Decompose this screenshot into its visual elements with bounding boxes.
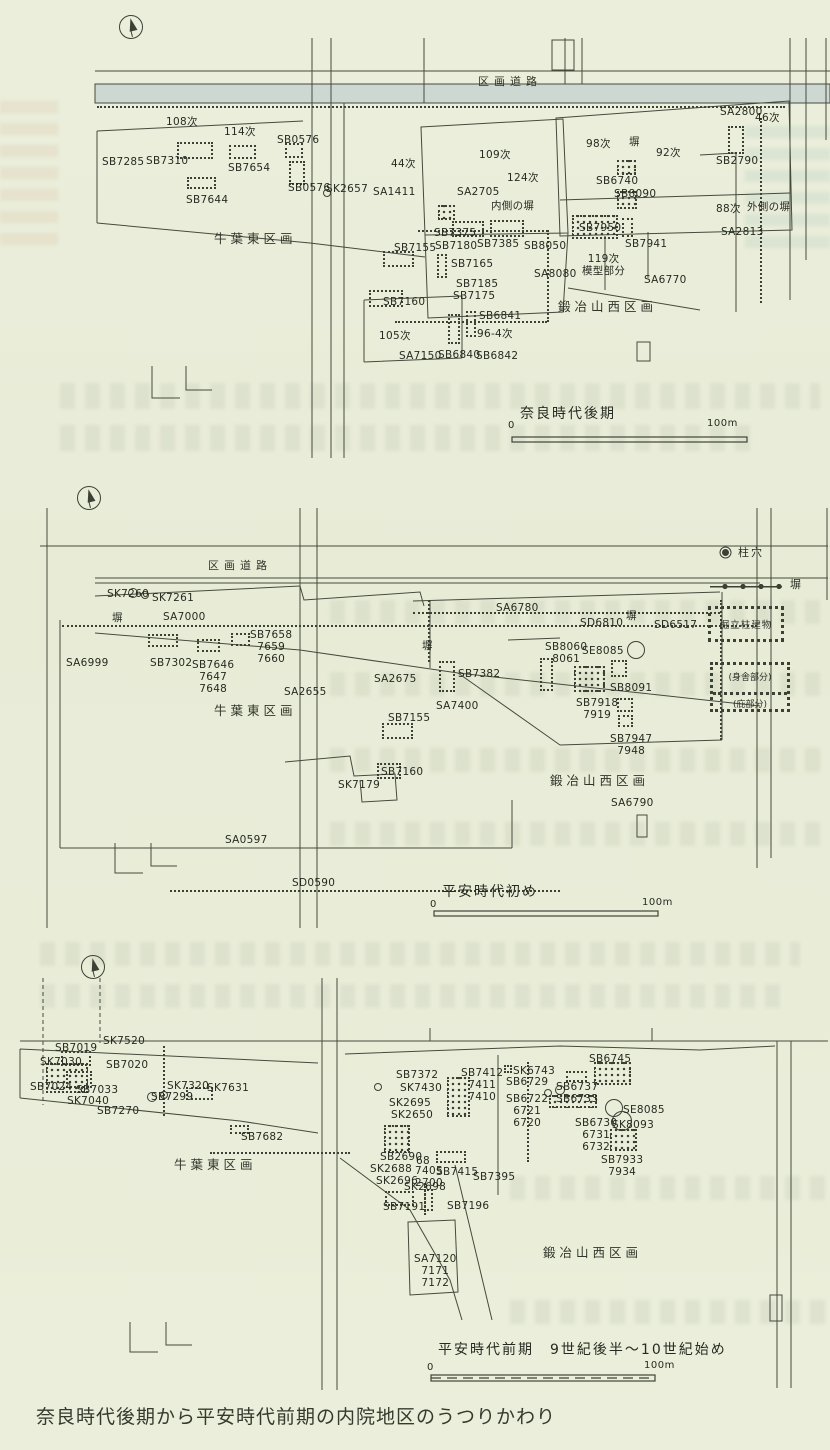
map-label: SK7520 xyxy=(103,1035,145,1047)
map-label: SB7299 xyxy=(151,1091,193,1103)
map-label: SK7631 xyxy=(207,1082,249,1094)
fence-line-icon xyxy=(710,582,782,591)
legend-hisashi-label: (庇部分) xyxy=(713,697,787,710)
fence-line xyxy=(163,1046,165,1116)
figure-caption: 奈良時代後期から平安時代前期の内院地区のうつりかわり xyxy=(36,1402,556,1429)
period-title: 平安時代前期 9世紀後半～10世紀始め xyxy=(438,1342,727,1358)
map-label: SB7395 xyxy=(473,1171,515,1183)
map-label: SB6733 xyxy=(556,1093,598,1105)
legend-posthole-label: 柱穴 xyxy=(738,544,764,560)
map-label: SK7030 xyxy=(40,1056,82,1068)
map-label: SB7933 7934 xyxy=(601,1154,643,1178)
pit-circle xyxy=(374,1083,382,1091)
map-label: 牛葉東区画 xyxy=(174,1158,257,1172)
map-label: 100m xyxy=(644,1360,675,1372)
map-label: SB6745 xyxy=(589,1053,631,1065)
building-outline xyxy=(384,1125,410,1153)
map-label: SE8085 xyxy=(623,1104,665,1116)
scanned-map-page: 区画道路108次114次SB0576SB7285SB7310SB7654SB05… xyxy=(0,0,830,1450)
map-label: SB7372 xyxy=(396,1069,438,1081)
map-label: 0 xyxy=(427,1362,434,1374)
posthole-icon xyxy=(722,549,729,556)
map-label: SB7191 xyxy=(383,1201,425,1213)
building-outline xyxy=(436,1151,466,1163)
map-label: SK2695 xyxy=(389,1097,431,1109)
map-label: SB7024 xyxy=(30,1081,72,1093)
map-label: SK2688 xyxy=(370,1163,412,1175)
pillar-building-icon: 掘立柱建物 xyxy=(708,606,784,642)
map-label: SK8093 xyxy=(612,1119,654,1131)
map-label: 鍛冶山西区画 xyxy=(543,1246,642,1260)
map-label: SB6729 xyxy=(506,1076,548,1088)
fence-line xyxy=(210,1152,350,1154)
map-label: SA7120 7171 7172 xyxy=(414,1253,457,1289)
map-label: SB7682 xyxy=(241,1131,283,1143)
legend-building-label: 掘立柱建物 xyxy=(720,617,773,631)
map-label: SK2650 xyxy=(391,1109,433,1121)
map-label: SK2698 xyxy=(404,1181,446,1193)
map-label: SB7196 xyxy=(447,1200,489,1212)
building-outline xyxy=(504,1065,512,1073)
heian-early-period-layer: SK7520SB7019SK7030SB7020SB7024SB7033SK70… xyxy=(0,0,830,1450)
pillar-building-with-eaves-icon: (身舎部分) (庇部分) xyxy=(710,662,790,712)
map-label: SB7412 7411 7410 xyxy=(461,1067,503,1103)
legend-moya-label: (身舎部分) xyxy=(713,670,787,683)
map-label: SK7430 xyxy=(400,1082,442,1094)
map-label: SB7019 xyxy=(55,1042,97,1054)
map-label: SB7020 xyxy=(106,1059,148,1071)
legend-divider xyxy=(713,692,787,695)
legend-fence-label: 塀 xyxy=(790,576,801,592)
building-outline xyxy=(594,1062,631,1085)
map-label: SB7270 xyxy=(97,1105,139,1117)
map-label: SB6737 xyxy=(556,1081,598,1093)
map-label: SB6722 6721 6720 xyxy=(506,1093,548,1129)
